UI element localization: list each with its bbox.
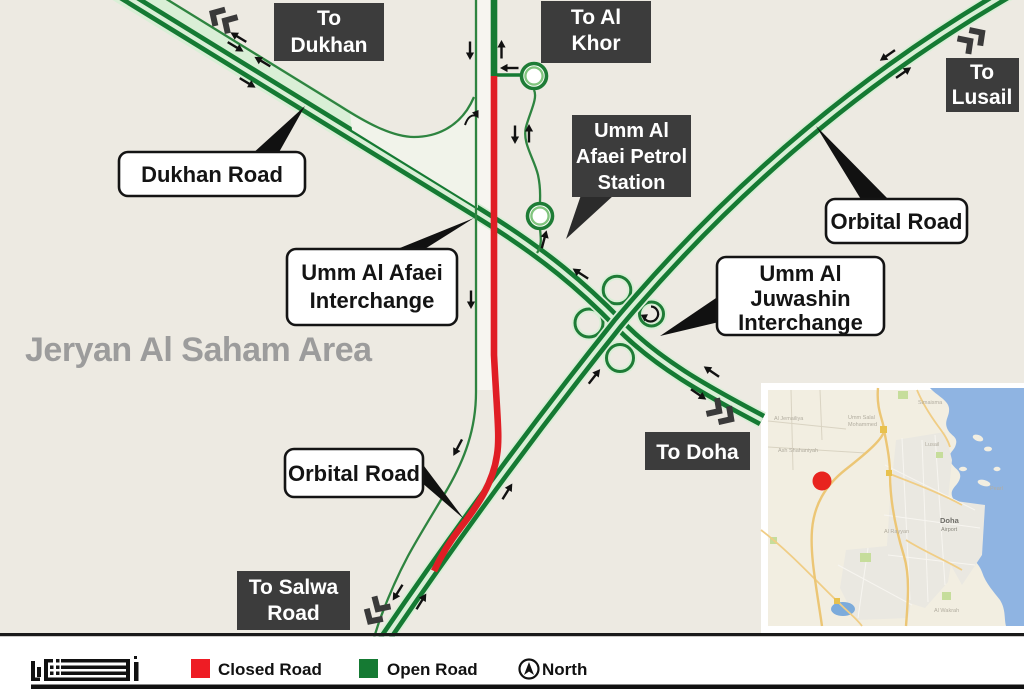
svg-text:Al Wakrah: Al Wakrah — [934, 608, 959, 614]
svg-text:Station: Station — [598, 172, 666, 194]
svg-text:Pearl: Pearl — [990, 486, 1003, 492]
svg-text:Airport: Airport — [941, 527, 958, 533]
svg-text:Jeryan Al Saham Area: Jeryan Al Saham Area — [25, 331, 373, 369]
svg-text:Dukhan Road: Dukhan Road — [141, 162, 283, 187]
svg-text:Lusail: Lusail — [925, 442, 939, 448]
svg-text:Simaisma: Simaisma — [918, 400, 943, 406]
svg-text:Lusail: Lusail — [952, 86, 1013, 109]
svg-text:Doha: Doha — [940, 516, 960, 525]
svg-text:Road: Road — [267, 602, 320, 625]
svg-text:Afaei Petrol: Afaei Petrol — [576, 146, 687, 168]
svg-text:Umm Salal: Umm Salal — [848, 415, 875, 421]
svg-text:To: To — [317, 7, 341, 30]
svg-text:Al Jemailiya: Al Jemailiya — [774, 416, 804, 422]
svg-text:Open Road: Open Road — [387, 660, 478, 679]
svg-text:To Doha: To Doha — [656, 441, 739, 464]
svg-text:North: North — [542, 660, 587, 679]
svg-text:Mohammed: Mohammed — [848, 422, 877, 428]
svg-text:Ash Shahaniyah: Ash Shahaniyah — [778, 448, 818, 454]
svg-text:Al Rayyan: Al Rayyan — [884, 529, 909, 535]
svg-text:Khor: Khor — [572, 32, 621, 55]
svg-text:To Salwa: To Salwa — [249, 576, 339, 599]
svg-text:To: To — [970, 61, 994, 84]
svg-text:Umm Al: Umm Al — [594, 120, 669, 142]
svg-text:To Al: To Al — [571, 6, 621, 29]
svg-text:Orbital Road: Orbital Road — [288, 461, 420, 486]
svg-text:Closed Road: Closed Road — [218, 660, 322, 679]
svg-text:Juwashin: Juwashin — [750, 286, 850, 311]
svg-text:Orbital Road: Orbital Road — [830, 209, 962, 234]
svg-text:Interchange: Interchange — [310, 288, 435, 313]
svg-text:Dukhan: Dukhan — [290, 34, 367, 57]
svg-text:Umm Al Afaei: Umm Al Afaei — [301, 260, 442, 285]
svg-text:Umm Al: Umm Al — [759, 261, 841, 286]
svg-text:Interchange: Interchange — [738, 310, 863, 335]
